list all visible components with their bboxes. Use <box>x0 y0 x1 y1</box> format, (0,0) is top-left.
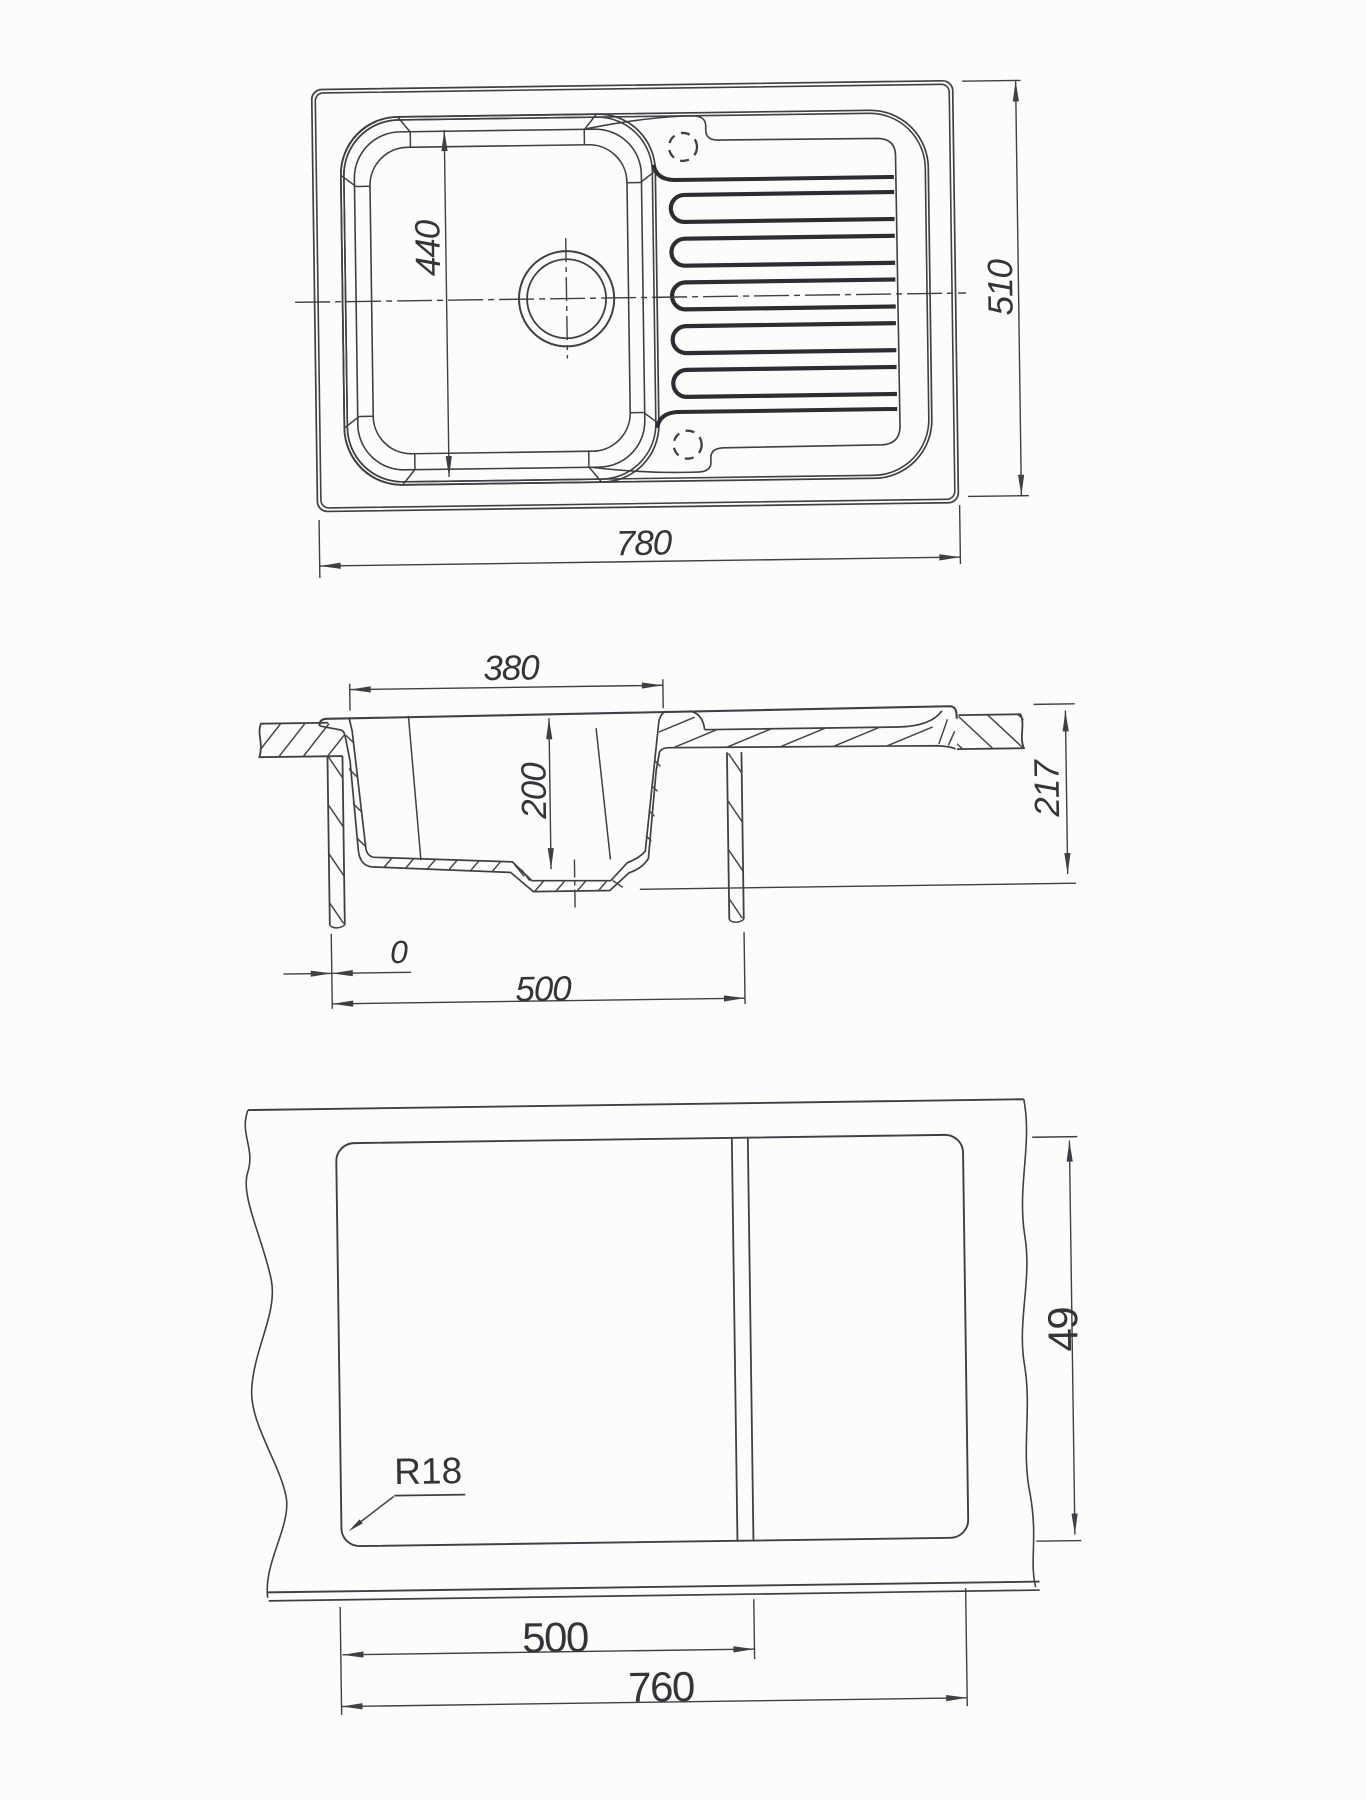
svg-text:0: 0 <box>390 934 409 970</box>
svg-text:49: 49 <box>1039 1307 1087 1352</box>
svg-text:380: 380 <box>483 648 540 688</box>
svg-text:200: 200 <box>514 762 554 820</box>
svg-text:760: 760 <box>628 1663 694 1711</box>
svg-text:500: 500 <box>522 1613 588 1661</box>
svg-text:500: 500 <box>515 969 572 1009</box>
svg-text:440: 440 <box>408 219 448 276</box>
svg-text:R18: R18 <box>394 1450 462 1492</box>
svg-text:217: 217 <box>1027 758 1067 817</box>
svg-text:780: 780 <box>616 523 673 563</box>
svg-text:510: 510 <box>981 258 1021 315</box>
